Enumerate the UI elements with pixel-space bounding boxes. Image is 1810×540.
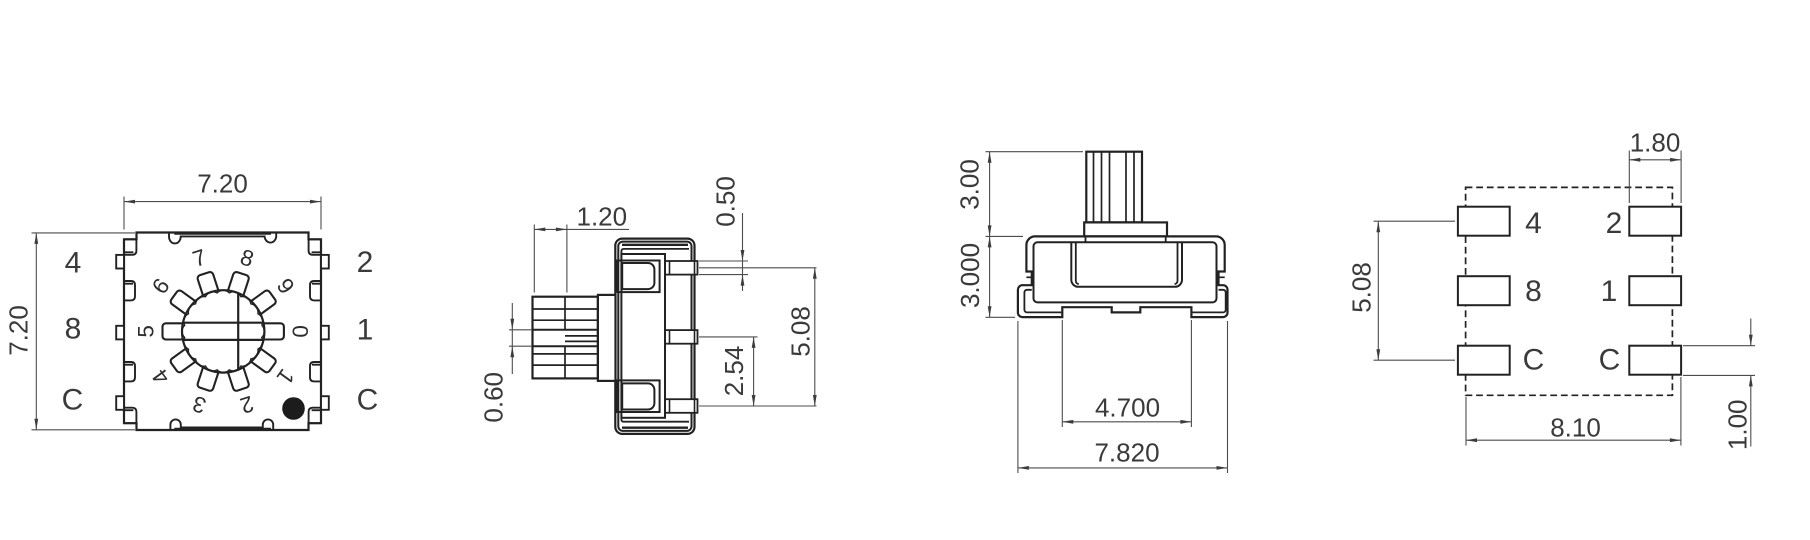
svg-text:5: 5 [134, 325, 159, 338]
svg-text:0.50: 0.50 [711, 176, 741, 227]
svg-text:7: 7 [190, 244, 210, 272]
svg-text:9: 9 [272, 274, 300, 299]
svg-text:4: 4 [147, 364, 175, 389]
svg-text:3.00: 3.00 [955, 159, 985, 210]
svg-text:0: 0 [288, 325, 313, 338]
svg-text:C: C [1599, 344, 1621, 377]
svg-text:8: 8 [237, 244, 257, 272]
svg-text:C: C [62, 384, 84, 417]
svg-text:7.20: 7.20 [197, 169, 248, 199]
svg-text:2: 2 [237, 391, 257, 419]
svg-text:3.000: 3.000 [955, 243, 985, 308]
svg-text:1: 1 [1601, 275, 1618, 308]
svg-text:C: C [357, 384, 379, 417]
svg-text:7.20: 7.20 [4, 305, 34, 356]
svg-text:2.54: 2.54 [719, 346, 749, 397]
svg-text:8.10: 8.10 [1550, 412, 1601, 442]
svg-text:8: 8 [1525, 275, 1542, 308]
svg-text:3: 3 [190, 391, 210, 419]
svg-text:5.08: 5.08 [1347, 262, 1377, 313]
svg-text:1.00: 1.00 [1722, 399, 1752, 450]
svg-text:4: 4 [65, 247, 82, 280]
svg-text:1: 1 [272, 364, 300, 389]
svg-text:1.80: 1.80 [1630, 128, 1681, 158]
svg-text:1: 1 [357, 314, 374, 347]
svg-text:5.08: 5.08 [786, 306, 816, 357]
svg-text:4.700: 4.700 [1095, 393, 1160, 423]
svg-text:8: 8 [65, 313, 82, 346]
svg-text:4: 4 [1525, 207, 1542, 240]
svg-text:1.20: 1.20 [576, 202, 627, 232]
svg-text:2: 2 [357, 246, 374, 279]
svg-text:2: 2 [1606, 207, 1623, 240]
svg-text:0.60: 0.60 [479, 372, 509, 423]
svg-text:6: 6 [147, 274, 175, 299]
svg-text:C: C [1523, 344, 1545, 377]
svg-text:7.820: 7.820 [1094, 438, 1159, 468]
